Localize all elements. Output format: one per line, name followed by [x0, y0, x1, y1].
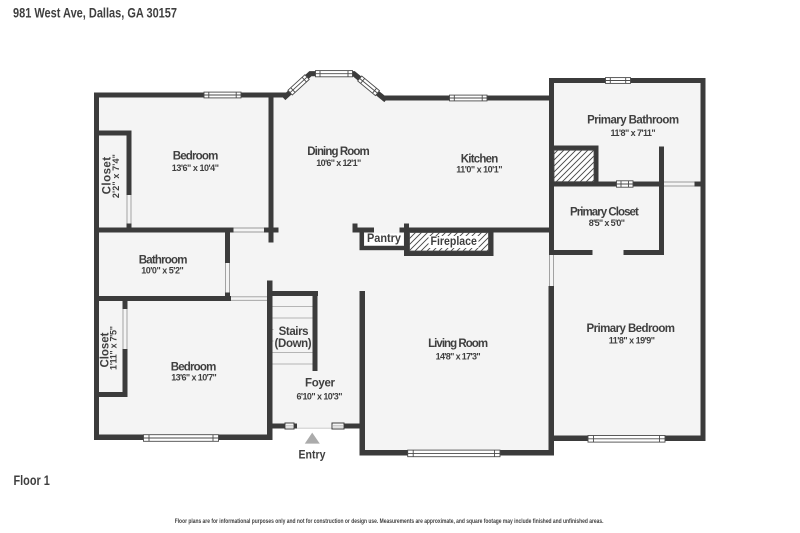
svg-text:981 West Ave, Dallas, GA 30157: 981 West Ave, Dallas, GA 30157	[13, 5, 177, 21]
svg-text:11'8" x 7'11": 11'8" x 7'11"	[611, 128, 656, 138]
svg-text:10'0" x 5'2": 10'0" x 5'2"	[141, 266, 184, 276]
svg-text:Fireplace: Fireplace	[431, 236, 477, 248]
svg-text:Stairs: Stairs	[279, 326, 309, 338]
svg-text:Dining Room: Dining Room	[307, 146, 370, 158]
svg-text:11'0" x 10'1": 11'0" x 10'1"	[456, 164, 502, 174]
svg-text:13'6" x 10'7": 13'6" x 10'7"	[171, 373, 217, 383]
svg-text:(Down): (Down)	[275, 338, 312, 350]
svg-text:Primary Bedroom: Primary Bedroom	[587, 323, 676, 335]
svg-text:Floor plans are for informatio: Floor plans are for informational purpos…	[175, 519, 604, 525]
svg-text:Floor 1: Floor 1	[14, 472, 50, 488]
svg-text:Primary Bathroom: Primary Bathroom	[587, 115, 679, 127]
svg-text:11'8" x 19'9": 11'8" x 19'9"	[609, 336, 655, 346]
svg-text:Living Room: Living Room	[428, 338, 488, 350]
svg-text:Primary Closet: Primary Closet	[570, 206, 639, 218]
svg-text:8'5" x 5'0": 8'5" x 5'0"	[589, 218, 625, 228]
svg-text:Bedroom: Bedroom	[171, 361, 217, 373]
svg-text:13'6" x 10'4": 13'6" x 10'4"	[172, 163, 219, 173]
svg-text:14'8" x 17'3": 14'8" x 17'3"	[436, 352, 481, 362]
svg-text:Foyer: Foyer	[305, 377, 336, 389]
svg-text:2'2" x 7'4": 2'2" x 7'4"	[111, 154, 121, 198]
svg-text:1'11" x 7'5": 1'11" x 7'5"	[109, 326, 119, 370]
svg-text:6'10" x 10'3": 6'10" x 10'3"	[297, 392, 343, 402]
svg-text:Pantry: Pantry	[367, 233, 402, 245]
svg-text:Bedroom: Bedroom	[173, 150, 219, 162]
svg-text:10'6" x 12'1": 10'6" x 12'1"	[316, 158, 361, 168]
svg-text:Entry: Entry	[299, 450, 327, 462]
